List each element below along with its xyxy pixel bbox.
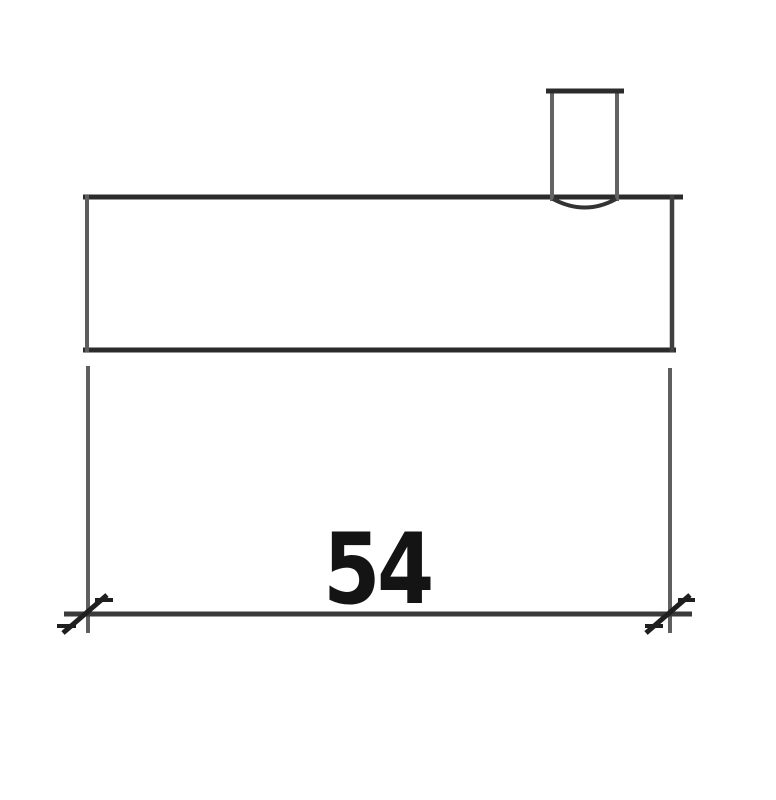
technical-drawing: 54	[0, 0, 776, 800]
dimension-value-label: 54	[323, 513, 431, 627]
peg-tab	[546, 89, 624, 208]
tab-bottom-arc	[553, 199, 616, 208]
drawing-canvas: 54	[0, 0, 776, 800]
part-outline	[83, 195, 683, 352]
